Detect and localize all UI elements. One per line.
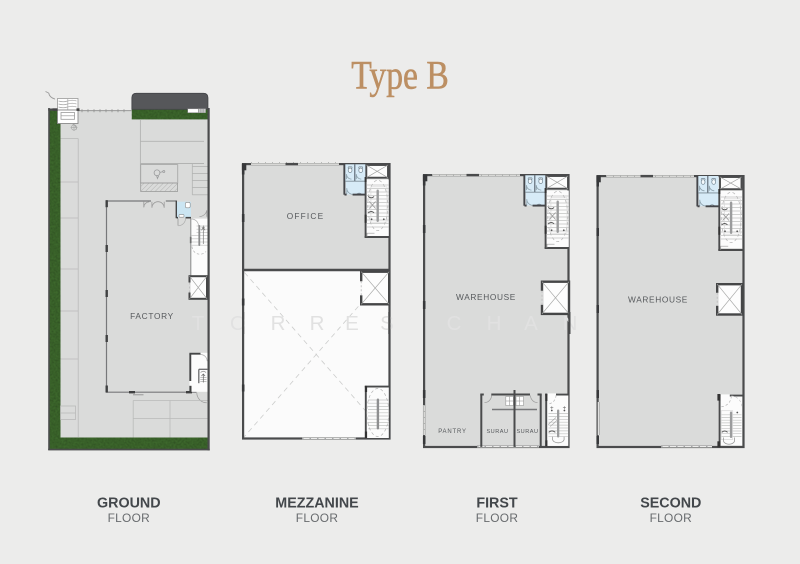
svg-text:A: A [524,312,538,335]
svg-text:PANTRY: PANTRY [438,429,467,435]
svg-text:Type B: Type B [351,53,448,97]
svg-text:WAREHOUSE: WAREHOUSE [628,295,688,305]
svg-text:GROUND: GROUND [97,495,161,511]
svg-text:R: R [310,312,325,335]
svg-text:MEZZANINE: MEZZANINE [275,495,358,511]
svg-text:WAREHOUSE: WAREHOUSE [456,292,516,302]
svg-text:SURAU: SURAU [486,429,508,435]
svg-text:FLOOR: FLOOR [650,511,693,525]
svg-text:SECOND: SECOND [640,495,701,511]
svg-text:FLOOR: FLOOR [476,511,519,525]
svg-text:SURAU: SURAU [516,429,538,435]
svg-text:E: E [345,312,359,335]
svg-text:H: H [487,312,502,335]
svg-text:FIRST: FIRST [476,495,518,511]
svg-text:FLOOR: FLOOR [108,511,151,525]
svg-text:OFFICE: OFFICE [287,211,325,221]
svg-text:R: R [271,312,286,335]
svg-text:T: T [192,312,205,335]
svg-text:C: C [447,312,462,335]
svg-text:S: S [380,312,394,335]
svg-text:FLOOR: FLOOR [296,511,339,525]
svg-text:FACTORY: FACTORY [130,311,174,321]
